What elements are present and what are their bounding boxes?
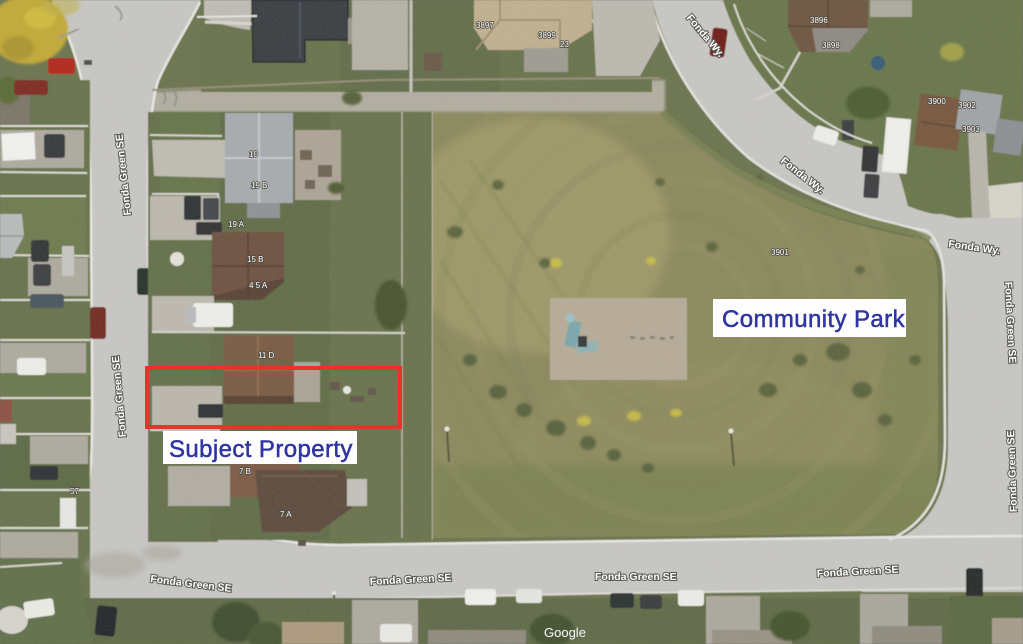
svg-text:7 A: 7 A [280,510,292,519]
svg-text:3898: 3898 [822,41,840,50]
svg-text:3900: 3900 [928,97,946,106]
svg-text:4 5 A: 4 5 A [249,281,268,290]
svg-text:11 D: 11 D [258,351,275,360]
svg-text:Fonda Green SE: Fonda Green SE [595,571,677,583]
svg-text:3899: 3899 [538,31,556,40]
svg-text:3901: 3901 [771,248,789,257]
svg-text:Subject Property: Subject Property [169,436,353,463]
svg-text:3902: 3902 [958,101,976,110]
svg-text:Community Park: Community Park [722,306,906,333]
svg-text:Google: Google [544,625,586,640]
svg-text:23: 23 [560,40,569,49]
svg-text:3903: 3903 [962,125,980,134]
svg-text:57: 57 [70,487,79,496]
svg-text:15 B: 15 B [247,255,263,264]
svg-text:10: 10 [249,150,258,159]
svg-text:19 A: 19 A [228,220,245,229]
svg-text:3896: 3896 [810,16,828,25]
svg-text:3897: 3897 [476,21,494,30]
svg-text:19 B: 19 B [251,181,267,190]
svg-text:7 B: 7 B [239,467,251,476]
